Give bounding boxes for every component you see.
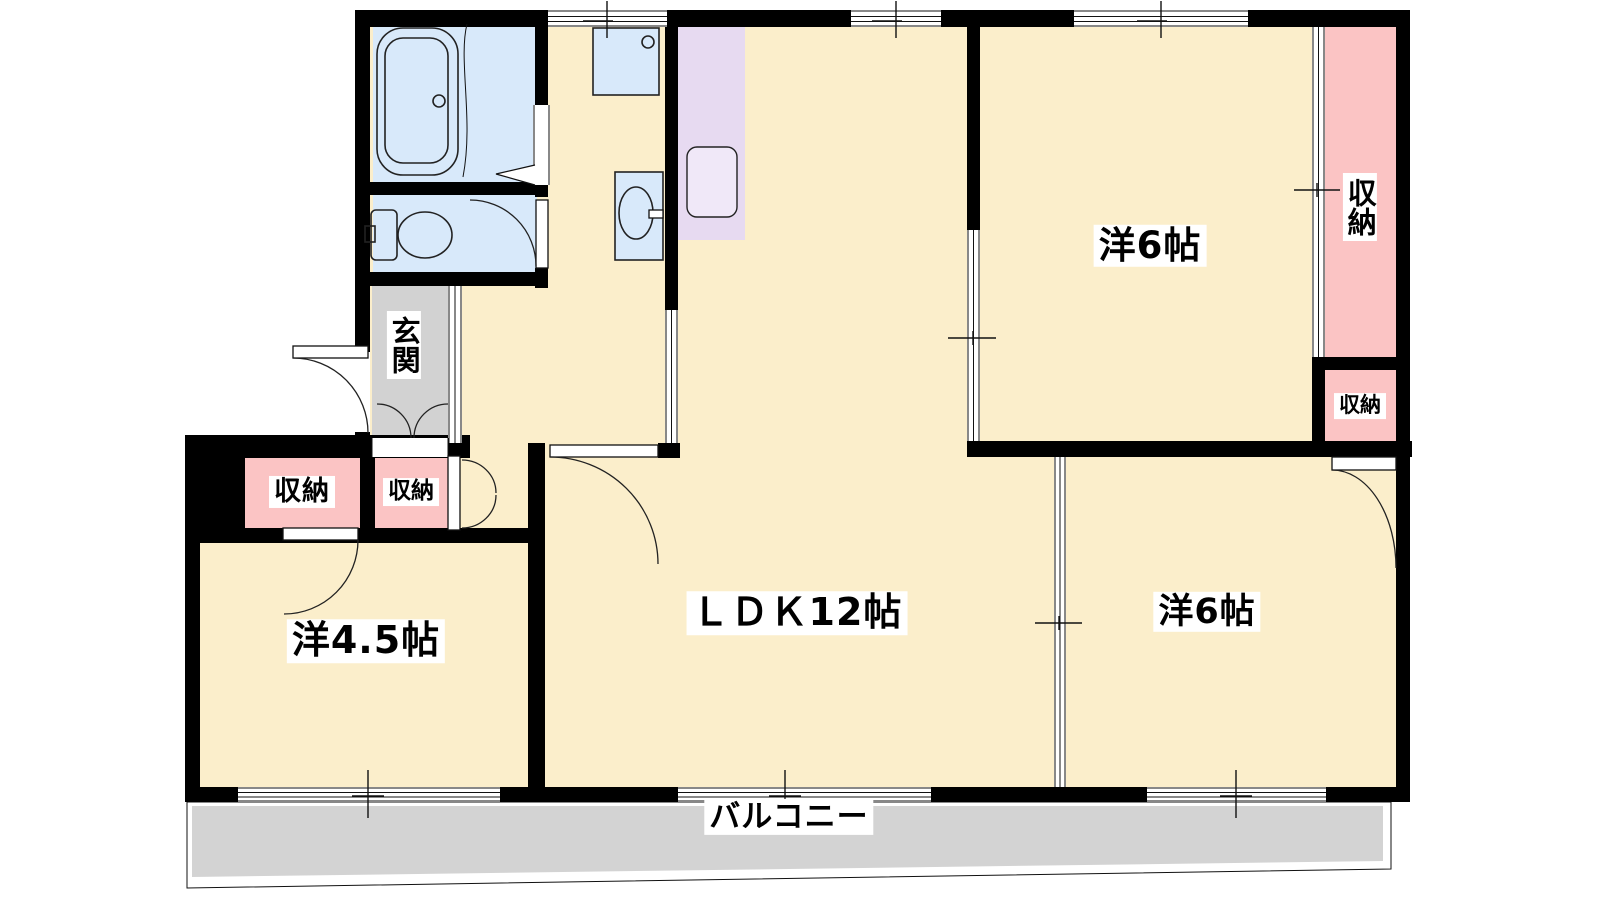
partition [448,286,462,443]
room-label-bedroom-ne: 洋6帖 [1094,225,1207,267]
sliding-door [1054,457,1066,787]
closet-label-small: 収納 [1334,393,1386,419]
room-label-entrance: 玄関 [387,311,421,379]
room-label-ldk: ＬＤＫ12帖 [687,591,908,635]
closet-label-tall: 収納 [1343,173,1377,241]
floorplan-page: ＬＤＫ12帖 洋6帖 洋6帖 洋4.5帖 玄関 収納 収納 収納 収納 バルコニ… [0,0,1600,900]
room-bathroom-floor [373,23,537,183]
closet-label-w1: 収納 [269,476,335,508]
room-label-bedroom-w: 洋4.5帖 [287,619,445,663]
room-label-bedroom-se: 洋6帖 [1153,592,1260,632]
washbasin [615,172,663,260]
sliding-door [1312,27,1325,357]
bathroom-doorway [533,105,550,185]
kitchen-sink [687,147,737,217]
closet-label-w2: 収納 [383,478,439,506]
floorplan-drawing [0,0,1600,900]
window [238,787,500,802]
balcony-label: バルコニー [704,799,873,835]
washing-machine-pan [593,28,659,95]
entrance-step [372,438,448,457]
partition [665,310,678,443]
